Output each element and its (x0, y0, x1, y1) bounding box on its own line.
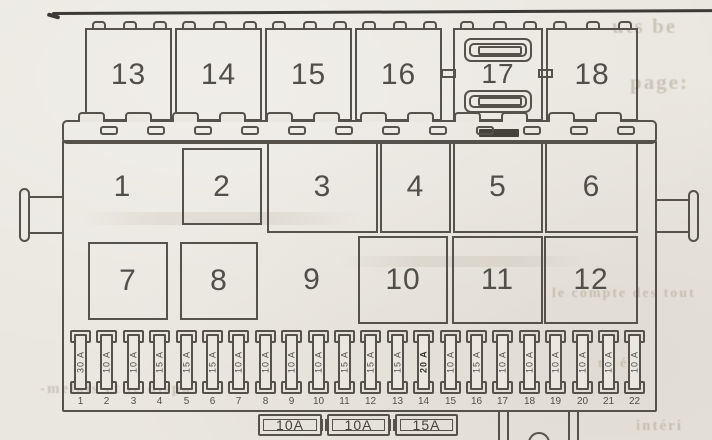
rail-bump (313, 112, 340, 122)
fuse-number: 5 (176, 396, 197, 407)
fuse: 10 A18 (519, 330, 540, 410)
rail-bump (407, 112, 434, 122)
rail-bump (125, 112, 152, 122)
fuse-body: 10 A (444, 334, 457, 390)
fuse-body: 10 A (496, 334, 509, 390)
fuse-body: 10 A (602, 334, 615, 390)
fuse-rating: 15 A (208, 336, 217, 388)
bottom-guide-line (568, 410, 570, 440)
fuse-number: 3 (123, 396, 144, 407)
fuse: 15 A4 (149, 330, 170, 410)
relay-position: 2 (182, 148, 262, 225)
left-tab-line (29, 196, 63, 198)
rail-slot (241, 126, 259, 135)
fuse-number: 15 (440, 396, 461, 407)
relay-position: 12 (544, 236, 638, 324)
rail-slot (194, 126, 212, 135)
fuse-rating: 10 A (234, 336, 243, 388)
main-fuse-strip-element (478, 46, 522, 55)
relay-position: 5 (453, 140, 543, 233)
spare-fuse: 15A (395, 414, 458, 436)
fuse-body: 15 A (206, 334, 219, 390)
fuse-number: 7 (228, 396, 249, 407)
fuse-rating: 10 A (604, 336, 613, 388)
fuse: 10 A2 (96, 330, 117, 410)
fuse-rating: 15 A (340, 336, 349, 388)
fuse: 10 A7 (228, 330, 249, 410)
main-fuse-strip (464, 90, 532, 113)
relay-position-open: 9 (267, 236, 357, 324)
relay-position: 6 (545, 140, 638, 233)
rail-slot (429, 126, 447, 135)
fuse-rating: 20 A (419, 336, 428, 388)
fuse-number: 18 (519, 396, 540, 407)
fuse-rating: 10 A (129, 336, 138, 388)
rail-slot (288, 126, 306, 135)
relay-slot-label: 16 (355, 28, 442, 121)
rail-bump (78, 112, 105, 122)
rail-bump (595, 112, 622, 122)
spare-fuse-label: 10A (332, 419, 385, 431)
fuse-body: 10 A (312, 334, 325, 390)
rail-bump (219, 112, 246, 122)
relay-slot-label: 13 (85, 28, 172, 121)
rail-slot (100, 126, 118, 135)
grommet-circle (528, 432, 550, 440)
fuse-number: 19 (545, 396, 566, 407)
fuse-number: 4 (149, 396, 170, 407)
rail-bump (548, 112, 575, 122)
fuse-body: 15 A (364, 334, 377, 390)
rail-slot (476, 126, 494, 135)
fuse-body: 10 A (523, 334, 536, 390)
fuse-rating: 10 A (287, 336, 296, 388)
fuse-body: 10 A (576, 334, 589, 390)
fuse: 10 A15 (440, 330, 461, 410)
fuse-rating: 10 A (498, 336, 507, 388)
fuse-number: 2 (96, 396, 117, 407)
fuse-body: 10 A (549, 334, 562, 390)
main-fuse-strip-element (478, 97, 522, 106)
fuse-body: 30 A (74, 334, 87, 390)
fuse: 15 A6 (202, 330, 223, 410)
fuse-rating: 10 A (525, 336, 534, 388)
relay-slot-label: 17 (453, 60, 543, 88)
right-tab-line (656, 231, 689, 233)
fuse: 10 A17 (492, 330, 513, 410)
fuse-body: 10 A (127, 334, 140, 390)
fuse: 10 A19 (545, 330, 566, 410)
fuse-relay-panel: 13141516171812345678910111230 A110 A210 … (0, 0, 712, 440)
fuse: 10 A21 (598, 330, 619, 410)
bottom-guide-line (577, 410, 579, 440)
spare-fuse-label: 15A (400, 419, 453, 431)
fuse-number: 14 (413, 396, 434, 407)
fuse-number: 21 (598, 396, 619, 407)
fuse-body: 10 A (232, 334, 245, 390)
spare-fuse-label: 10A (263, 419, 317, 431)
fuse-body: 15 A (470, 334, 483, 390)
fuse-rating: 30 A (76, 336, 85, 388)
fuse: 15 A16 (466, 330, 487, 410)
fuse-number: 12 (360, 396, 381, 407)
fuse-number: 13 (387, 396, 408, 407)
fuse: 15 A5 (176, 330, 197, 410)
fuse-rating: 15 A (366, 336, 375, 388)
fuse-rating: 15 A (472, 336, 481, 388)
relay-position: 3 (267, 140, 378, 233)
fuse: 15 A12 (360, 330, 381, 410)
fuse: 20 A14 (413, 330, 434, 410)
fuse-number: 6 (202, 396, 223, 407)
rail-bump (172, 112, 199, 122)
rail-bump (266, 112, 293, 122)
fuse: 10 A3 (123, 330, 144, 410)
fuse-body: 10 A (259, 334, 272, 390)
fuse-rating: 10 A (630, 336, 639, 388)
rail-bump (360, 112, 387, 122)
bottom-guide-line (498, 410, 500, 440)
fuse-number: 9 (281, 396, 302, 407)
fuse-body: 15 A (180, 334, 193, 390)
rail-bump (454, 112, 481, 122)
fuse-number: 17 (492, 396, 513, 407)
rail-slot (147, 126, 165, 135)
rail-bump (501, 112, 528, 122)
fuse: 30 A1 (70, 330, 91, 410)
left-tab-line (29, 232, 63, 234)
relay-slot-label: 15 (265, 28, 352, 121)
rail-slot (523, 126, 541, 135)
rail-slot (335, 126, 353, 135)
fuse-rating: 10 A (578, 336, 587, 388)
fuse-rating: 15 A (182, 336, 191, 388)
fuse: 10 A9 (281, 330, 302, 410)
fuse-body: 10 A (628, 334, 641, 390)
fuse-body: 10 A (285, 334, 298, 390)
fuse-number: 8 (255, 396, 276, 407)
relay-position: 8 (180, 242, 258, 320)
fuse-number: 20 (572, 396, 593, 407)
fuse-number: 10 (308, 396, 329, 407)
fuse-rating: 10 A (102, 336, 111, 388)
relay-position: 7 (88, 242, 168, 320)
fuse-rating: 10 A (446, 336, 455, 388)
fuse-body: 20 A (417, 334, 430, 390)
fuse-body: 15 A (153, 334, 166, 390)
fuse-number: 11 (334, 396, 355, 407)
fuse-rating: 15 A (393, 336, 402, 388)
spare-fuse: 10A (327, 414, 390, 436)
fuse-body: 15 A (338, 334, 351, 390)
right-mounting-tab (688, 190, 699, 242)
fuse-number: 1 (70, 396, 91, 407)
relay-slot-label: 14 (175, 28, 262, 121)
fuse: 10 A20 (572, 330, 593, 410)
rail-slot (382, 126, 400, 135)
relay-slot-label: 18 (546, 28, 638, 121)
fuse-body: 15 A (391, 334, 404, 390)
fuse: 15 A11 (334, 330, 355, 410)
fuse: 15 A13 (387, 330, 408, 410)
relay-position: 4 (380, 140, 451, 233)
fuse-rating: 15 A (155, 336, 164, 388)
fuse-number: 22 (624, 396, 645, 407)
relay-position: 11 (452, 236, 543, 324)
fuse-rating: 10 A (314, 336, 323, 388)
fuse-rating: 10 A (261, 336, 270, 388)
fuse-body: 10 A (100, 334, 113, 390)
spare-fuse: 10A (258, 414, 322, 436)
relay-position: 10 (358, 236, 448, 324)
fuse-number: 16 (466, 396, 487, 407)
rail-slot (570, 126, 588, 135)
rail-slot (617, 126, 635, 135)
bottom-guide-line (507, 410, 509, 440)
fuse: 10 A22 (624, 330, 645, 410)
fuse-rating: 10 A (551, 336, 560, 388)
scanned-page: uts bepage:le compte des toutnt été-mela… (0, 0, 712, 440)
fuse: 10 A10 (308, 330, 329, 410)
right-tab-line (656, 199, 689, 201)
fuse: 10 A8 (255, 330, 276, 410)
relay-position-open: 1 (65, 140, 180, 233)
